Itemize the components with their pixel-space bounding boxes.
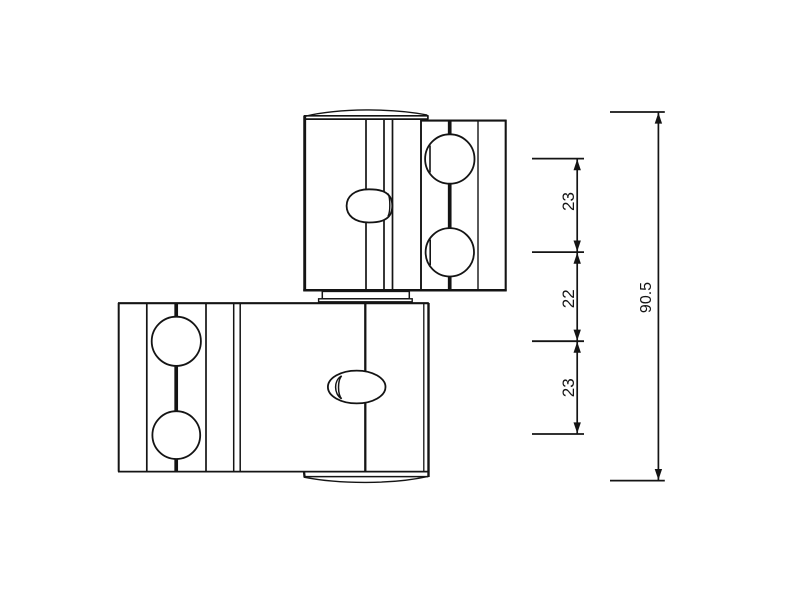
svg-text:90.5: 90.5 (638, 282, 655, 313)
svg-text:22: 22 (559, 289, 578, 308)
svg-text:23: 23 (559, 192, 578, 211)
svg-text:23: 23 (559, 378, 578, 397)
